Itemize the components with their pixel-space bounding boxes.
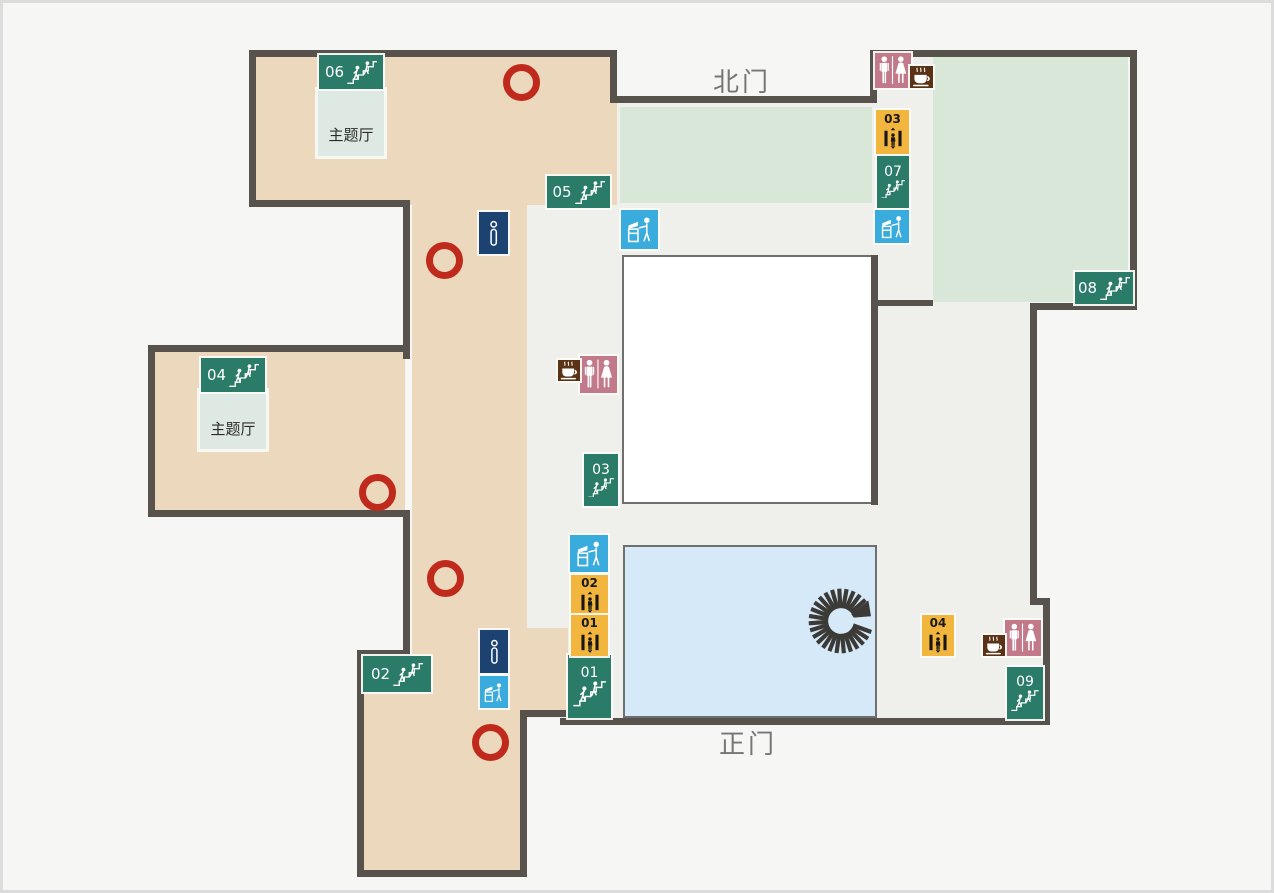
wall-segment [148,510,410,517]
restroom-badge[interactable] [875,53,911,88]
stairs-icon [575,180,605,205]
wall-segment [560,718,1050,725]
stairs-badge[interactable]: 09 [1007,667,1043,719]
red-circle-marker[interactable] [359,474,396,511]
service-kiosk-icon [877,212,908,242]
wall-segment [148,345,410,352]
badge-number: 08 [1078,281,1097,296]
wall-segment [871,255,878,505]
badge-number: 01 [581,617,598,629]
wall-segment [1030,303,1037,605]
red-circle-marker[interactable] [426,242,463,279]
corridor-beige-patch [527,628,568,712]
elevator-badge[interactable]: 04 [922,615,954,656]
room-north-green [620,107,872,203]
wall-segment [1043,598,1050,725]
wall-segment [148,345,155,517]
wall-segment [520,710,568,717]
wall-segment [1130,50,1137,310]
stairs-badge[interactable]: 04 [201,358,265,392]
elevator-icon [580,589,600,615]
wall-segment [610,50,617,103]
elevator-icon [928,629,948,655]
restroom-badge[interactable] [1005,620,1041,656]
restroom-icon [581,357,615,391]
badge-number: 05 [552,185,571,200]
theme-hall-box-north: 主题厅 [318,90,384,156]
stairs-icon [229,363,259,388]
badge-number: 03 [884,113,901,125]
badge-number: 07 [884,165,902,179]
service-kiosk-icon [623,212,656,247]
badge-number: 01 [581,666,599,680]
service-kiosk-icon [572,537,606,570]
elevator-icon [883,125,903,151]
stairs-badge[interactable]: 08 [1075,272,1133,304]
corridor-beige [412,203,527,712]
information-badge[interactable] [480,630,508,673]
stairs-icon [1100,276,1130,301]
wall-segment [1030,303,1137,310]
elevator-badge[interactable]: 03 [876,110,909,154]
elevator-icon [580,629,600,655]
wall-segment [357,870,527,877]
wall-segment [403,510,410,657]
cafe-badge[interactable] [983,635,1005,656]
badge-number: 06 [325,65,344,80]
cafe-icon [911,67,933,88]
cafe-badge[interactable] [558,360,580,381]
wall-segment [872,300,933,306]
wall-segment [249,50,617,57]
badge-number: 04 [930,617,947,629]
stairs-badge[interactable]: 02 [363,656,431,692]
service-kiosk-badge[interactable] [875,210,909,243]
information-icon [485,215,502,252]
wall-segment [520,710,527,877]
wall-segment [403,200,410,359]
wall-segment [249,50,256,207]
stairs-icon [393,662,423,687]
stairs-badge[interactable]: 05 [547,176,610,208]
main-gate-label: 正门 [698,724,798,761]
stairs-icon [588,478,614,498]
cafe-icon [559,361,580,381]
stairs-icon [1011,690,1038,711]
information-badge[interactable] [479,212,508,254]
badge-number: 04 [207,368,226,383]
stairs-badge[interactable]: 06 [319,55,383,89]
restroom-icon [876,54,909,86]
service-kiosk-badge[interactable] [570,535,608,572]
cafe-badge[interactable] [910,66,933,88]
badge-number: 02 [581,577,598,589]
room-northeast-green [933,57,1128,302]
stairs-icon [573,681,606,707]
badge-number: 09 [1016,675,1034,689]
central-atrium [622,255,875,504]
information-icon [486,633,503,671]
spiral-staircase-icon [803,583,879,659]
stairs-icon [347,60,377,85]
red-circle-marker[interactable] [427,560,464,597]
badge-number: 02 [371,667,390,682]
red-circle-marker[interactable] [503,64,540,101]
theme-hall-label: 主题厅 [210,418,255,439]
service-kiosk-icon [481,678,506,707]
theme-hall-label: 主题厅 [328,124,373,145]
elevator-badge[interactable]: 01 [571,615,608,656]
north-gate-label: 北门 [692,62,792,99]
restroom-badge[interactable] [580,356,617,393]
stairs-badge[interactable]: 01 [568,655,611,718]
badge-number: 03 [592,463,610,477]
wall-segment [249,200,410,207]
floorplan-map: 主题厅 主题厅 06 05 04 02 08 07 03 01 [0,0,1274,893]
stairs-icon [881,180,905,199]
restroom-icon [1006,621,1039,654]
service-kiosk-badge[interactable] [621,210,658,249]
cafe-icon [984,636,1005,656]
red-circle-marker[interactable] [472,724,509,761]
stairs-badge[interactable]: 03 [584,454,618,506]
elevator-badge[interactable]: 02 [571,575,608,616]
theme-hall-box-west: 主题厅 [200,391,266,449]
stairs-badge[interactable]: 07 [877,155,909,208]
service-kiosk-badge[interactable] [480,676,508,708]
